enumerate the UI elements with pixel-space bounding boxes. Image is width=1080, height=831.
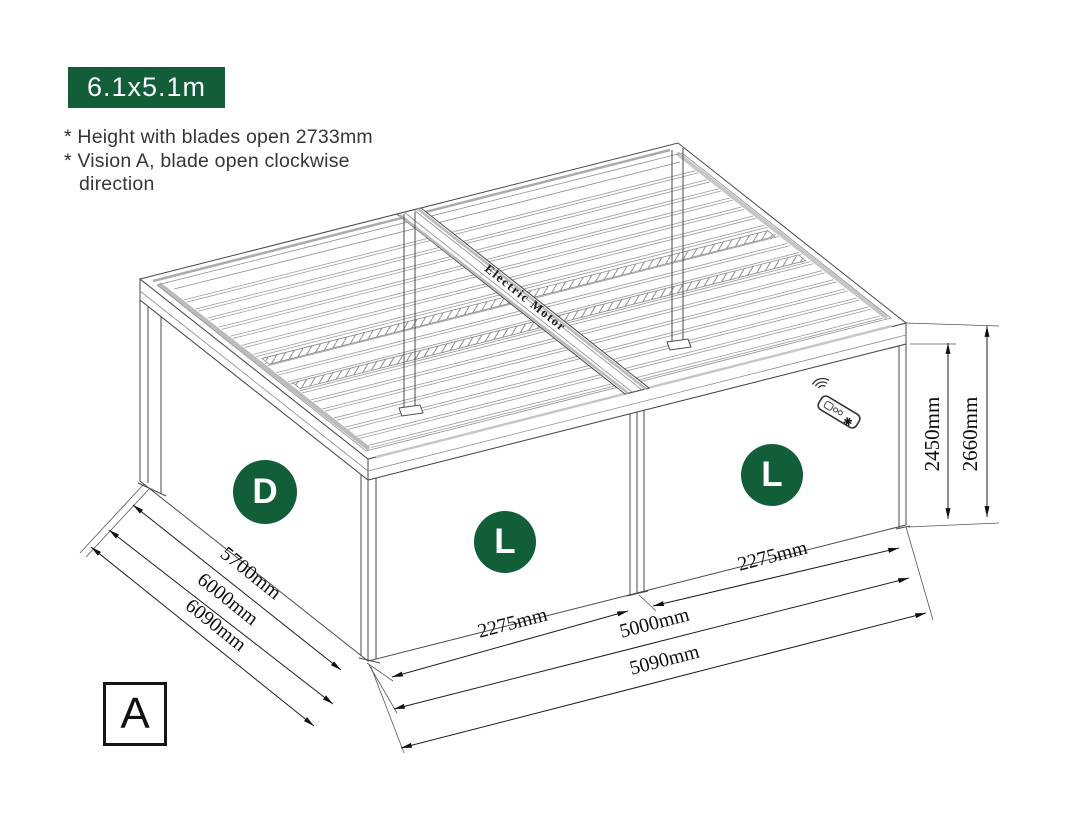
dim-label-2660: 2660mm [958,397,982,472]
pergola-spec-page: 6.1x5.1m * Height with blades open 2733m… [0,0,1080,831]
zone-circle-l2: L [741,444,803,506]
zone-circle-l1: L [474,511,536,573]
view-marker-a: A [103,682,167,746]
zone-circle-d: D [233,460,297,524]
dim-label-2450: 2450mm [920,397,944,472]
